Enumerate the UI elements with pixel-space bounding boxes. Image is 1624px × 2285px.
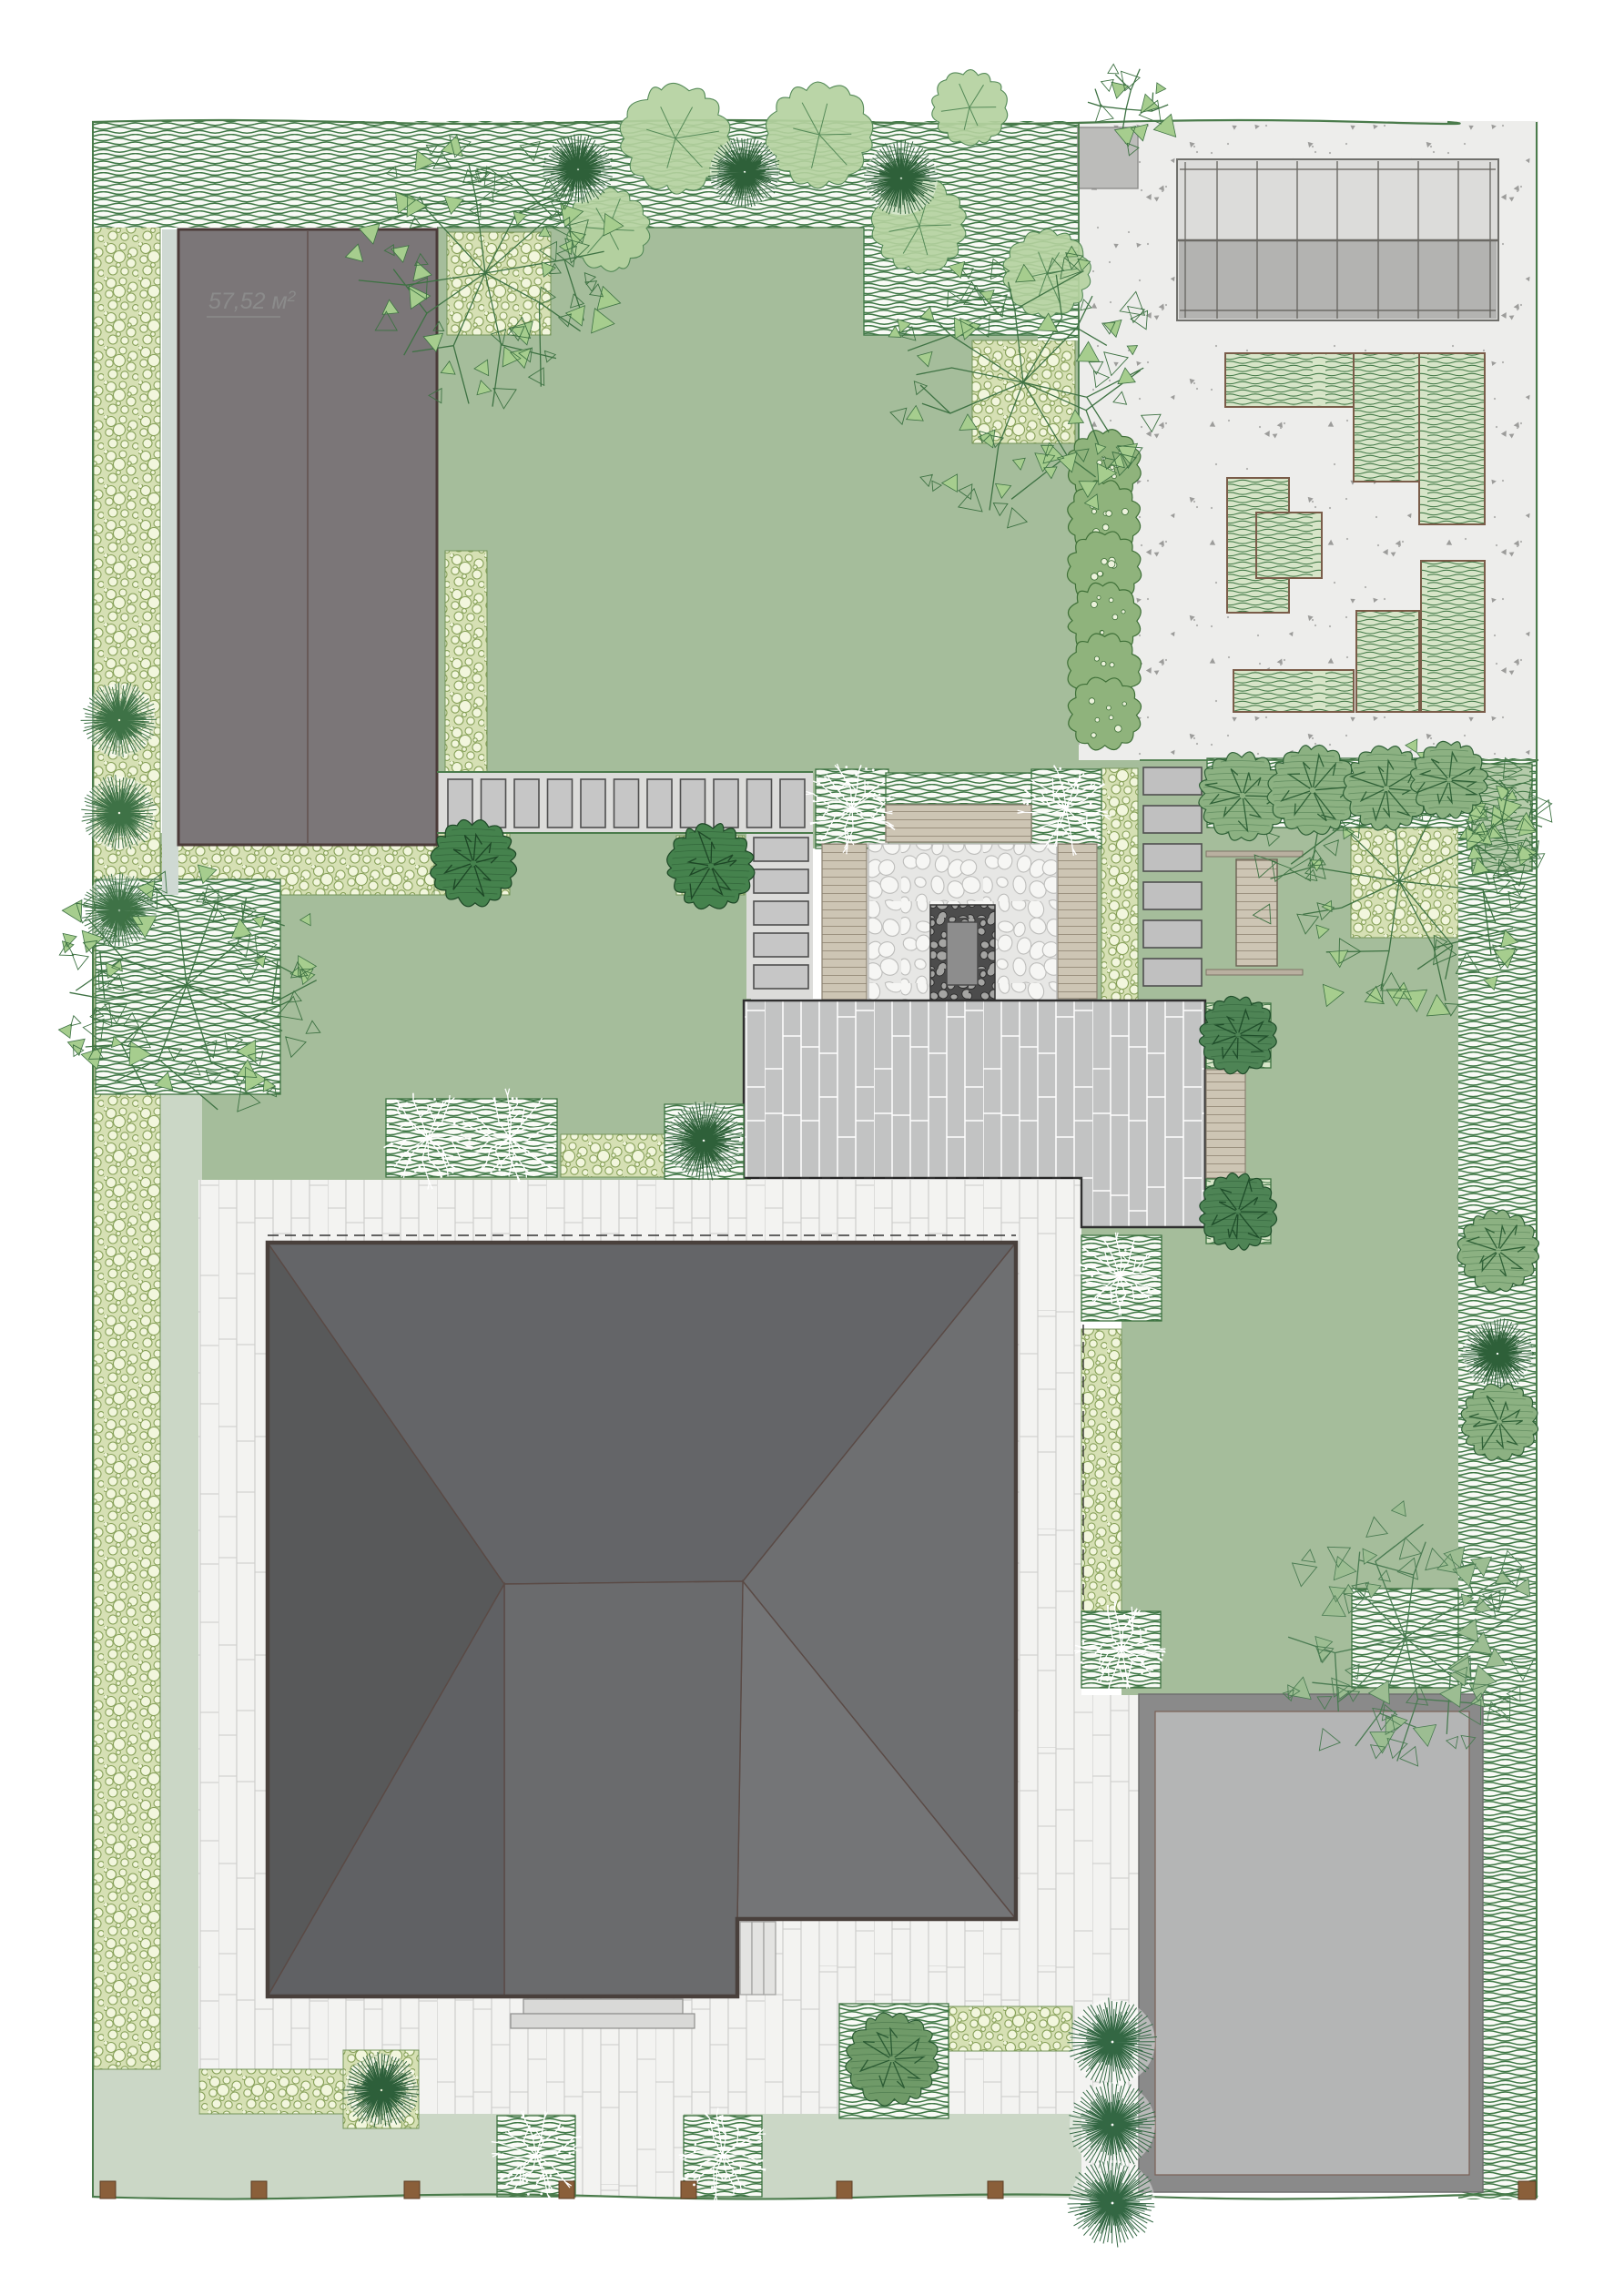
svg-text:57,52 м2: 57,52 м2 (208, 288, 297, 314)
